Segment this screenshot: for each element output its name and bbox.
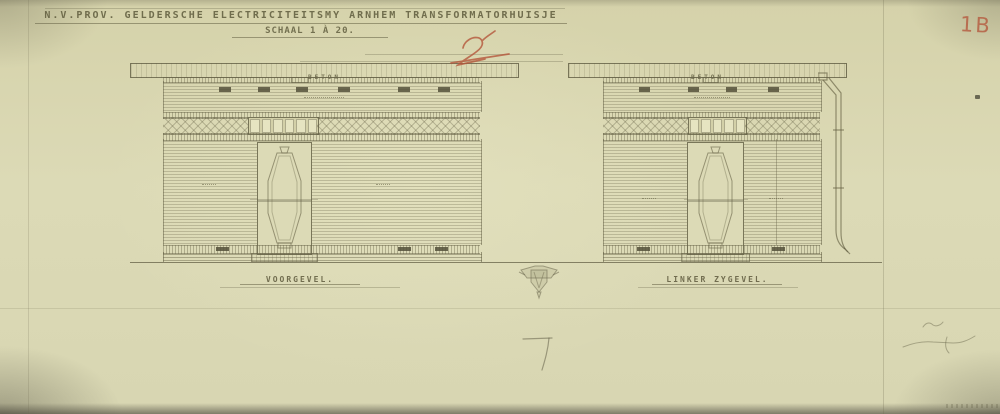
guide-line xyxy=(300,61,563,62)
plinth-vent xyxy=(637,247,650,251)
fold-line-horizontal xyxy=(0,308,1000,309)
window-pane xyxy=(262,119,272,133)
front-upper-band xyxy=(163,81,482,112)
downpipe xyxy=(818,70,856,260)
red-sheet-number: 1B xyxy=(959,12,992,38)
corner-pilaster-line xyxy=(776,139,777,245)
side-roof-slab: BETON xyxy=(568,63,847,78)
window-pane xyxy=(690,119,699,133)
vent-slot xyxy=(258,87,270,92)
plinth-vent xyxy=(435,247,448,251)
vent-slot xyxy=(639,87,650,92)
window-pane xyxy=(296,119,306,133)
fold-line-left xyxy=(28,0,29,414)
front-base-course xyxy=(163,252,482,262)
vent-slot xyxy=(688,87,699,92)
window-pane xyxy=(273,119,283,133)
scale-underline xyxy=(232,37,388,38)
plinth-vent xyxy=(398,247,411,251)
window-pane xyxy=(713,119,722,133)
architect-emblem xyxy=(517,262,561,302)
side-base-course xyxy=(603,252,822,262)
drawing-sheet: N.V.PROV. GELDERSCHE ELECTRICITEITSMY AR… xyxy=(0,0,1000,414)
front-caption-rule xyxy=(220,287,400,288)
vent-slot xyxy=(438,87,450,92)
wall-annotation xyxy=(694,97,730,98)
ground-line xyxy=(130,262,882,263)
front-caption-underline xyxy=(240,284,360,285)
vent-slot xyxy=(219,87,231,92)
front-caption: VOORGEVEL. xyxy=(230,275,370,284)
side-caption-underline xyxy=(652,284,782,285)
side-upper-band xyxy=(603,81,822,112)
title-underline xyxy=(35,23,567,24)
plinth-vent xyxy=(772,247,785,251)
wall-annotation xyxy=(376,184,390,185)
vent-slot xyxy=(296,87,308,92)
scale-label: SCHAAL 1 À 20. xyxy=(232,26,388,36)
vent-slot xyxy=(768,87,779,92)
window-pane xyxy=(701,119,710,133)
pencil-signature xyxy=(895,315,990,360)
side-caption: LINKER ZYGEVEL. xyxy=(645,275,790,284)
window-pane xyxy=(250,119,260,133)
pencil-arrow-mark xyxy=(518,330,563,372)
vent-slot xyxy=(726,87,737,92)
door-seam-line xyxy=(250,199,318,200)
front-main-wall xyxy=(163,139,482,245)
vent-slot xyxy=(338,87,350,92)
window-pane xyxy=(736,119,745,133)
wall-annotation xyxy=(202,184,216,185)
fold-line-right xyxy=(883,0,884,414)
side-caption-rule xyxy=(638,287,798,288)
window-pane xyxy=(724,119,733,133)
vent-slot xyxy=(398,87,410,92)
archive-stamp-faint xyxy=(946,404,998,408)
window-pane xyxy=(285,119,295,133)
wall-annotation xyxy=(642,198,656,199)
window-pane xyxy=(308,119,318,133)
red-revision-mark xyxy=(443,30,518,72)
plinth-vent xyxy=(216,247,229,251)
door-seam-line xyxy=(684,199,748,200)
title-rule-top xyxy=(45,8,565,9)
paper-blemish xyxy=(975,95,980,99)
drawing-title: N.V.PROV. GELDERSCHE ELECTRICITEITSMY AR… xyxy=(35,10,567,21)
wall-annotation xyxy=(304,97,344,98)
